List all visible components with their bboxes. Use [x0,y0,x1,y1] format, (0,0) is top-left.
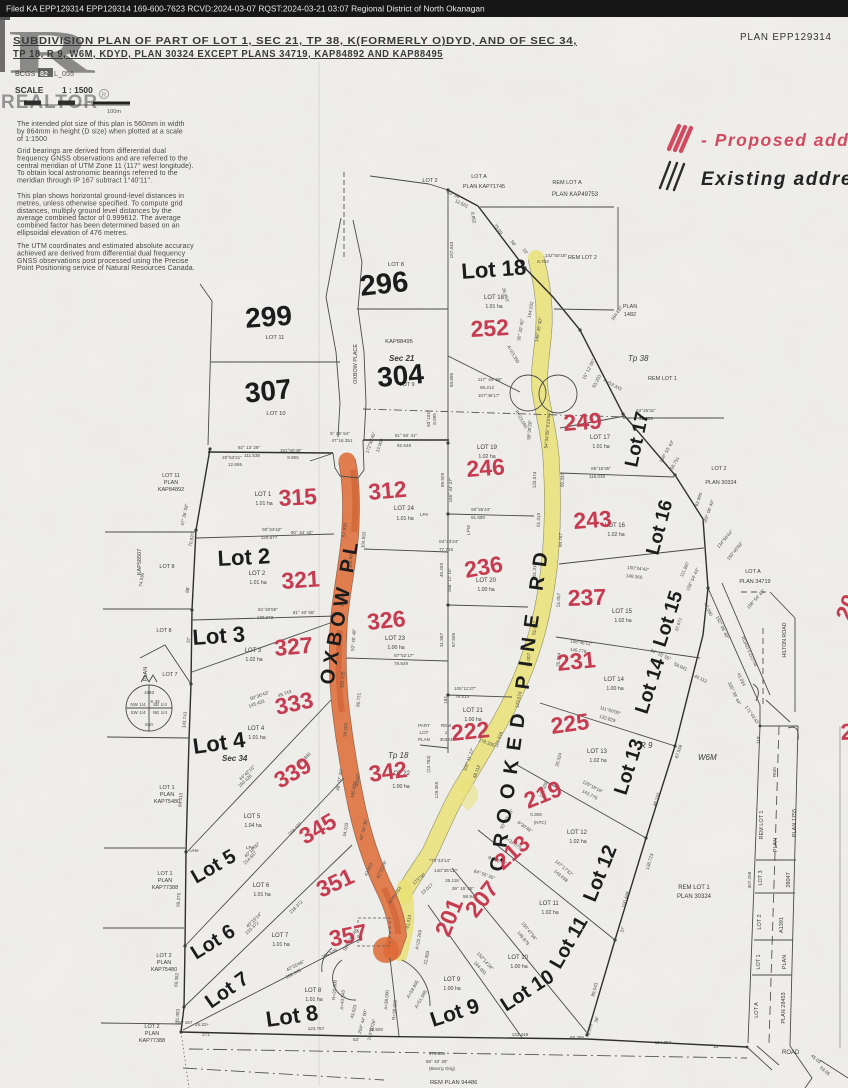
svg-text:47°16.351: 47°16.351 [332,438,353,443]
svg-text:16': 16' [713,1044,719,1049]
svg-text:45.203: 45.203 [439,563,444,577]
svg-text:88° 40' 25": 88° 40' 25" [426,1059,449,1064]
svg-text:KAP77388: KAP77388 [152,885,178,891]
svg-text:Filed KA EPP129314 EPP129314 1: Filed KA EPP129314 EPP129314 169-600-762… [6,4,485,14]
svg-text:PART: PART [418,723,430,728]
svg-text:1.02 ha: 1.02 ha [569,839,586,845]
svg-text:NE 1/4: NE 1/4 [153,710,167,715]
svg-text:REALTOR: REALTOR [1,92,98,113]
svg-text:Lot 2: Lot 2 [217,543,271,571]
svg-text:271: 271 [202,1032,210,1037]
svg-text:1.00 ha: 1.00 ha [477,587,494,593]
svg-text:(Bear'g Orig): (Bear'g Orig) [429,1066,456,1071]
svg-text:LOT: LOT [420,730,429,735]
svg-text:SE 1/4: SE 1/4 [153,702,167,707]
svg-text:51.057: 51.057 [556,592,562,607]
svg-text:222: 222 [450,716,491,746]
svg-text:90°34'42": 90°34'42" [262,527,282,532]
svg-text:1.02 ha: 1.02 ha [607,532,624,538]
svg-text:PLAN: PLAN [418,737,430,742]
svg-text:- Proposed addre: - Proposed addre [701,130,848,150]
svg-text:142°50'18": 142°50'18" [545,253,568,258]
svg-text:NW 1/4: NW 1/4 [130,702,146,707]
svg-text:PLAN: PLAN [145,1031,159,1037]
svg-text:PLAN: PLAN [782,955,788,969]
svg-text:61.319: 61.319 [536,512,542,527]
svg-text:PLAN 28453: PLAN 28453 [781,992,787,1023]
svg-text:130.272: 130.272 [257,615,274,620]
svg-text:79.514: 79.514 [455,694,469,699]
svg-text:LOT 10: LOT 10 [508,955,529,961]
svg-text:237: 237 [567,584,606,611]
svg-text:LOT A: LOT A [754,1002,760,1018]
svg-text:299: 299 [244,300,293,334]
svg-text:840: 840 [145,722,153,727]
svg-text:118': 118' [756,736,761,745]
svg-text:90°35'44": 90°35'44" [471,507,491,512]
svg-text:PLAN 30324: PLAN 30324 [705,480,736,486]
svg-text:123.767: 123.767 [308,1026,325,1031]
svg-text:22: 22 [840,718,848,745]
svg-text:REM PLAN 94486: REM PLAN 94486 [430,1080,477,1086]
svg-text:LOT 21: LOT 21 [463,708,484,714]
svg-text:The UTM coordinates and estima: The UTM coordinates and estimated absolu… [17,243,194,250]
svg-text:1.01 ha: 1.01 ha [485,304,502,310]
svg-text:LOT 3: LOT 3 [245,648,262,654]
svg-text:LOT 10: LOT 10 [266,411,285,417]
svg-text:1.01 ha: 1.01 ha [253,892,270,898]
svg-text:25.32+: 25.32+ [195,1022,209,1027]
svg-text:342: 342 [367,756,409,787]
svg-text:87.509: 87.509 [451,633,456,647]
svg-text:87°52'17": 87°52'17" [394,653,414,658]
svg-text:KAP75480: KAP75480 [151,967,177,973]
svg-text:8.095: 8.095 [432,413,437,425]
svg-text:307.258: 307.258 [747,871,752,888]
svg-text:average combined factor of 0.9: average combined factor of 0.999612. The… [17,215,181,222]
svg-text:LOT 7: LOT 7 [272,933,289,939]
svg-text:Lot 3: Lot 3 [192,621,246,650]
svg-text:1.02 ha: 1.02 ha [589,758,606,764]
svg-text:1.02 ha: 1.02 ha [614,618,631,624]
svg-text:PLAN EPP129314: PLAN EPP129314 [740,32,832,43]
svg-text:KAP75480: KAP75480 [154,799,180,805]
svg-text:HILTON ROAD: HILTON ROAD [782,622,788,657]
svg-text:37': 37' [186,637,192,644]
svg-text:LOT 5: LOT 5 [244,814,261,820]
svg-text:KAP84892: KAP84892 [158,487,184,493]
svg-text:KAP88495: KAP88495 [385,339,413,345]
svg-text:8.905: 8.905 [287,455,299,460]
svg-text:LOT 18: LOT 18 [484,295,505,301]
svg-text:134.250: 134.250 [655,1040,672,1045]
svg-text:92° 13' 29": 92° 13' 29" [238,445,261,450]
svg-text:81° 50' 41": 81° 50' 41" [395,433,418,438]
svg-text:LOT 11: LOT 11 [539,901,559,907]
svg-text:326: 326 [366,605,407,635]
svg-text:LPW: LPW [466,524,471,535]
svg-text:31.587: 31.587 [439,633,444,647]
svg-text:88': 88' [185,586,191,593]
svg-text:243: 243 [573,505,613,534]
svg-text:1.01 ha: 1.01 ha [272,942,289,948]
svg-text:LOT 19: LOT 19 [477,445,498,451]
svg-text:252: 252 [470,314,510,342]
svg-text:REM LOT 1: REM LOT 1 [759,811,765,840]
svg-text:246: 246 [466,453,506,482]
svg-text:LPe: LPe [246,845,255,850]
svg-text:1.00 ha: 1.00 ha [443,986,460,992]
svg-text:LOT 1: LOT 1 [159,785,174,791]
svg-text:98.212: 98.212 [480,385,494,390]
svg-text:Sec 34: Sec 34 [222,754,248,763]
svg-text:LOT 2: LOT 2 [156,953,171,959]
svg-text:84.767: 84.767 [558,532,564,547]
svg-text:77.716: 77.716 [439,547,453,552]
svg-text:LOT 2: LOT 2 [422,178,437,184]
svg-text:1.04 ha: 1.04 ha [244,823,261,829]
svg-text:LOT A: LOT A [471,174,487,180]
svg-text:100m: 100m [107,109,121,115]
svg-text:LOT 13: LOT 13 [587,749,608,755]
svg-text:315: 315 [278,483,318,511]
svg-text:TP 18, R 9, W6M, KDYD, P: TP 18, R 9, W6M, KDYD, PLAN 30324 EXCEPT… [13,49,443,60]
svg-text:REM LOT 1: REM LOT 1 [678,885,710,891]
svg-text:Point Positioning service of N: Point Positioning service of Natural Res… [17,265,195,272]
svg-text:307: 307 [243,373,293,409]
svg-text:GNSS observations post process: GNSS observations post processed using t… [17,258,189,265]
svg-text:LOT 11: LOT 11 [266,335,285,341]
svg-text:20°53'21": 20°53'21" [222,455,242,460]
svg-text:296: 296 [358,266,409,303]
svg-text:Grid bearings are derived from: Grid bearings are derived from different… [17,148,166,155]
svg-text:LOT A: LOT A [745,569,761,575]
svg-text:(NTC): (NTC) [534,820,547,825]
svg-text:LOT 24: LOT 24 [394,506,415,512]
svg-text:PLAN: PLAN [160,792,174,798]
svg-text:6.704: 6.704 [537,259,549,264]
svg-text:LOT 1: LOT 1 [157,871,172,877]
svg-text:PLAN 1755: PLAN 1755 [792,809,798,837]
svg-text:LOT 2: LOT 2 [757,914,763,929]
svg-text:9° 28' 54": 9° 28' 54" [330,431,350,436]
svg-text:KAP77388: KAP77388 [139,1038,165,1044]
svg-text:168° 11' 15": 168° 11' 15" [447,567,452,592]
svg-text:LOT 2: LOT 2 [249,571,266,577]
svg-text:PLAN: PLAN [157,960,171,966]
svg-text:1.02 ha: 1.02 ha [245,657,262,663]
svg-text:157.043: 157.043 [449,241,454,258]
svg-text:metres, unless otherwise speci: metres, unless otherwise specified. To c… [17,200,183,207]
svg-text:of 1:1500: of 1:1500 [17,136,47,143]
svg-text:249: 249 [563,407,603,436]
svg-text:LOT 23: LOT 23 [385,636,406,642]
svg-text:(23.783): (23.783) [426,755,431,773]
svg-text:LOT 15: LOT 15 [612,609,633,615]
svg-text:1993: 1993 [144,690,155,695]
svg-text:63°104': 63°104' [426,411,431,427]
svg-text:91.690: 91.690 [471,515,485,520]
svg-text:LOT 8: LOT 8 [305,988,322,994]
svg-text:KAP58507: KAP58507 [137,549,143,575]
svg-text:1.01 ha: 1.01 ha [592,444,609,450]
svg-text:Existing addres: Existing addres [701,169,848,190]
svg-text:321: 321 [281,565,321,594]
svg-text:1.01 ha: 1.01 ha [255,501,272,507]
svg-text:The intended plot size of this: The intended plot size of this plan is 5… [17,121,185,128]
svg-text:LOT 4: LOT 4 [248,726,265,732]
svg-text:117° 44' 56": 117° 44' 56" [478,377,503,382]
svg-text:PLAN: PLAN [773,838,779,852]
svg-text:327: 327 [273,632,313,661]
svg-text:RMS: RMS [772,767,777,777]
svg-text:60.337: 60.337 [560,472,566,487]
svg-text:231: 231 [556,646,597,676]
svg-text:meridian through IP 167 subtra: meridian through IP 167 subtract 1°40'11… [17,177,152,185]
svg-text:BCGS: BCGS [15,69,36,78]
svg-text:570.536: 570.536 [429,1051,446,1056]
svg-text:PLAN: PLAN [158,878,172,884]
svg-text:107°46'17": 107°46'17" [478,393,501,398]
svg-text:REM LOT 2: REM LOT 2 [568,255,597,261]
svg-text:REM LOT 1: REM LOT 1 [648,376,677,382]
svg-text:81° 40' 55": 81° 40' 55" [293,610,316,615]
svg-text:ROAD: ROAD [782,1050,800,1056]
svg-text:1.00 ha: 1.00 ha [392,784,409,790]
svg-text:distances, multiply ground lev: distances, multiply ground level distanc… [17,208,172,215]
svg-text:central meridian of UTM Zone 1: central meridian of UTM Zone 11 (117° we… [17,162,193,170]
svg-text:1: 1 [445,730,448,735]
svg-text:PLAN KAP49753: PLAN KAP49753 [552,192,599,198]
svg-text:105°11'27": 105°11'27" [454,686,476,691]
svg-text:To obtain local astronomic bea: To obtain local astronomic bearings refe… [17,170,178,177]
svg-text:ellipsoidal elevation of 476 m: ellipsoidal elevation of 476 metres. [17,230,128,237]
svg-text:Tp 38: Tp 38 [628,354,649,363]
svg-text:R: R [102,92,107,99]
svg-text:L_055: L_055 [54,69,74,78]
svg-text:LOT 7: LOT 7 [162,672,177,678]
svg-text:1482: 1482 [624,312,636,318]
svg-text:LOT 14: LOT 14 [604,677,625,683]
svg-text:1.01 ha: 1.01 ha [396,516,413,522]
svg-text:1.00 ha: 1.00 ha [510,964,527,970]
svg-text:A1391: A1391 [779,917,785,933]
svg-text:LOT 2: LOT 2 [144,1024,159,1030]
svg-text:PLAN KAP71745: PLAN KAP71745 [463,184,505,190]
svg-text:PLAN: PLAN [623,304,637,310]
svg-text:225: 225 [549,708,591,739]
svg-text:28047: 28047 [786,872,792,887]
svg-text:LOT 8: LOT 8 [156,628,171,634]
svg-text:81°40'55": 81°40'55" [258,607,278,612]
svg-text:PLAN 34719: PLAN 34719 [739,579,770,585]
svg-text:frequency GNSS observations an: frequency GNSS observations and are refe… [17,155,188,162]
svg-text:124.677: 124.677 [261,535,278,540]
svg-text:133.574: 133.574 [532,471,538,488]
svg-text:LOT 8: LOT 8 [159,564,174,570]
svg-text:78.549: 78.549 [394,661,408,666]
svg-text:35.118: 35.118 [445,878,459,883]
svg-text:LOT 1: LOT 1 [756,954,762,969]
svg-text:LOT 1: LOT 1 [255,492,272,498]
svg-text:304: 304 [376,358,426,393]
svg-text:82: 82 [40,69,48,78]
svg-text:90° 34' 42": 90° 34' 42" [291,530,314,535]
svg-text:combined factor has been deter: combined factor has been determined base… [17,223,180,230]
svg-text:Lot 18: Lot 18 [461,254,527,283]
svg-text:140°35'11"*: 140°35'11"* [434,868,458,873]
svg-text:133.446: 133.446 [512,1032,529,1037]
svg-text:This plan shows horizontal gro: This plan shows horizontal ground-level … [17,193,184,200]
svg-text:LOT 12: LOT 12 [567,830,588,836]
svg-text:85°15'35": 85°15'35" [591,466,611,471]
svg-text:LOT 3: LOT 3 [758,870,764,885]
svg-text:111.538: 111.538 [244,453,260,458]
svg-text:SUBDIVISION PLAN OF PART O: SUBDIVISION PLAN OF PART OF LOT 1, SEC 2… [13,36,577,47]
svg-text:LOT 9: LOT 9 [444,977,461,983]
svg-text:REM LOT A: REM LOT A [552,180,582,186]
svg-text:89.929: 89.929 [440,473,445,487]
svg-text:181°50'45": 181°50'45" [280,448,303,453]
svg-text:182: 182 [443,696,448,704]
svg-text:115.030: 115.030 [589,474,606,479]
svg-text:achieved are derived from diff: achieved are derived from differential d… [17,250,186,257]
svg-text:PLAN: PLAN [164,480,178,486]
svg-text:LPe: LPe [420,512,429,517]
svg-text:1.00 ha: 1.00 ha [606,686,623,692]
svg-text:*73°43'14": *73°43'14" [429,858,451,863]
svg-text:1.01 ha: 1.01 ha [248,735,265,741]
svg-text:LOT 11: LOT 11 [162,473,180,479]
svg-text:84°43'24": 84°43'24" [439,539,459,544]
svg-text:PLAN 30324: PLAN 30324 [677,894,712,900]
svg-text:LOT 6: LOT 6 [253,883,270,889]
svg-text:53': 53' [353,1037,359,1042]
svg-text:by 864mm in height (D size) wh: by 864mm in height (D size) when plotted… [17,128,183,135]
svg-text:83.898: 83.898 [449,373,454,387]
svg-text:LOT 2: LOT 2 [711,466,726,472]
svg-text:129.355: 129.355 [434,781,439,798]
svg-text:312: 312 [367,476,407,505]
svg-text:LOT 17: LOT 17 [590,435,611,441]
svg-text:1.00 ha: 1.00 ha [387,645,404,651]
svg-text:92.648: 92.648 [397,443,411,448]
svg-text:PLAN: PLAN [143,667,149,681]
svg-text:185° 44' 37": 185° 44' 37" [448,477,453,502]
svg-text:1.01 ha: 1.01 ha [249,580,266,586]
svg-text:W6M: W6M [698,753,717,762]
svg-text:UHe: UHe [189,848,199,853]
svg-text:58.395: 58.395 [570,1035,584,1040]
svg-text:12.695: 12.695 [228,462,242,467]
svg-text:OXBOW PLACE: OXBOW PLACE [353,344,359,384]
svg-text:SW 1/4: SW 1/4 [130,710,146,715]
svg-text:1.02 ha: 1.02 ha [541,910,558,916]
